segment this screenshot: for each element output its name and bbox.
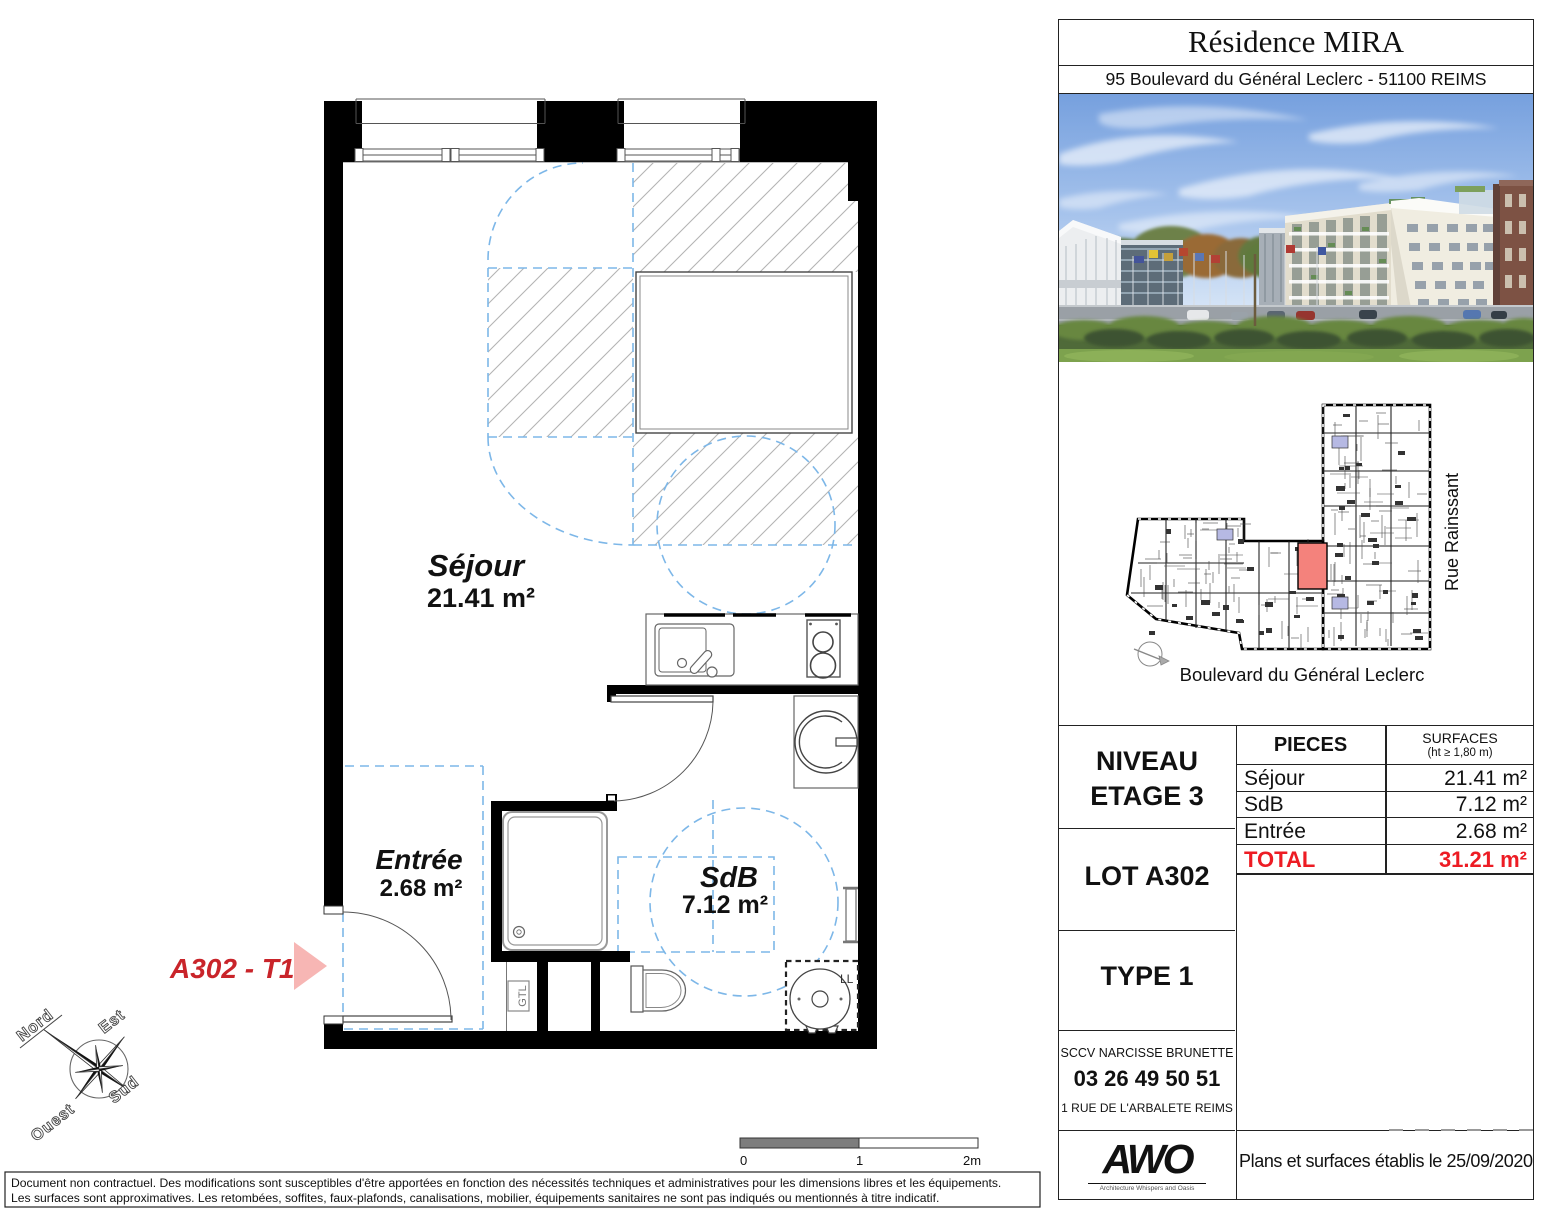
svg-text:Nord: Nord <box>14 1006 57 1045</box>
svg-text:0: 0 <box>740 1153 747 1168</box>
svg-text:Boulevard du Général Leclerc: Boulevard du Général Leclerc <box>1180 664 1425 685</box>
svg-text:A302 - T1: A302 - T1 <box>169 953 295 984</box>
svg-text:Rue Rainssant: Rue Rainssant <box>1442 473 1462 591</box>
svg-text:2.68 m²: 2.68 m² <box>380 875 463 902</box>
svg-text:LL: LL <box>840 972 854 986</box>
svg-text:GTL: GTL <box>517 985 529 1006</box>
svg-text:Est: Est <box>96 1007 128 1038</box>
svg-text:SdB: SdB <box>700 862 758 894</box>
svg-text:21.41 m²: 21.41 m² <box>427 583 535 613</box>
svg-text:1: 1 <box>856 1153 863 1168</box>
svg-text:Document non contractuel. Des: Document non contractuel. Des modificati… <box>11 1176 1001 1190</box>
svg-text:2m: 2m <box>963 1153 981 1168</box>
svg-text:Ouest: Ouest <box>28 1101 78 1145</box>
svg-text:Entrée: Entrée <box>375 844 462 875</box>
svg-text:7.12 m²: 7.12 m² <box>682 891 768 919</box>
svg-text:Séjour: Séjour <box>428 548 526 583</box>
svg-text:Les surfaces sont approximativ: Les surfaces sont approximatives. Les re… <box>11 1191 939 1205</box>
